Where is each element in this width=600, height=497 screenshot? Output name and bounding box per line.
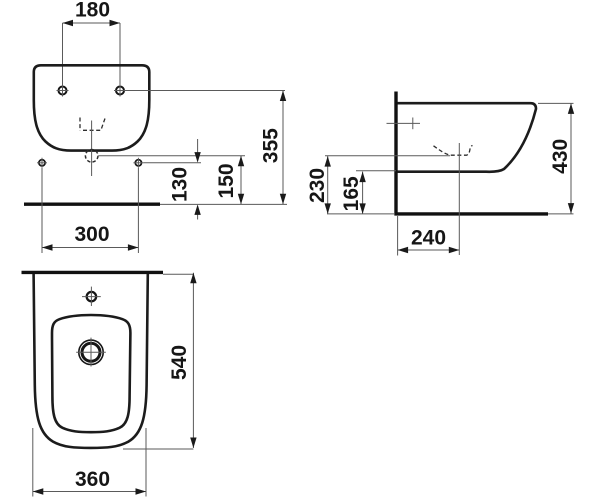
svg-text:360: 360 <box>75 468 110 491</box>
svg-text:355: 355 <box>260 128 283 163</box>
svg-text:230: 230 <box>306 168 329 203</box>
svg-text:540: 540 <box>168 345 191 380</box>
svg-text:300: 300 <box>74 223 109 246</box>
svg-text:430: 430 <box>549 139 572 174</box>
svg-text:150: 150 <box>215 163 238 198</box>
svg-text:130: 130 <box>169 167 192 202</box>
svg-text:240: 240 <box>411 227 446 250</box>
svg-text:180: 180 <box>75 0 110 21</box>
svg-text:165: 165 <box>340 176 363 211</box>
